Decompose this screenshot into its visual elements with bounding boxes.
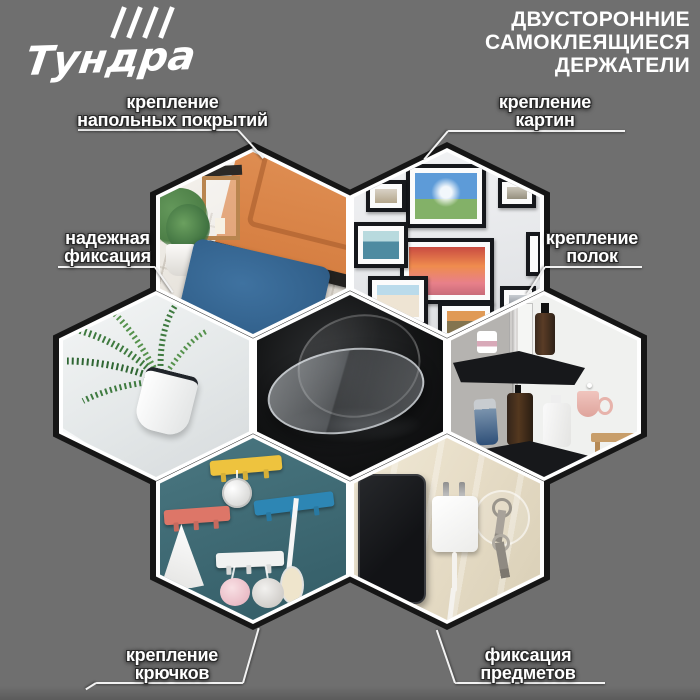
callout-text: напольных покрытий	[55, 112, 290, 130]
callout-text: крепление	[450, 94, 640, 112]
callout-hooks: крепление крючков	[82, 647, 262, 682]
cream-jar	[477, 331, 497, 353]
callout-line-pictures	[448, 130, 625, 132]
product-infographic: Тундра ДВУСТОРОННИЕ САМОКЛЕЯЩИЕСЯ ДЕРЖАТ…	[0, 0, 700, 700]
title-line: САМОКЛЕЯЩИЕСЯ	[485, 31, 690, 54]
callout-text: фиксация	[438, 647, 618, 665]
picture-frame	[406, 164, 486, 228]
callout-fixation: надежная фиксация	[25, 230, 190, 265]
title-line: ДЕРЖАТЕЛИ	[485, 54, 690, 77]
white-pump-bottle	[543, 403, 571, 447]
pink-cup	[577, 391, 599, 417]
callout-text: крепление	[82, 647, 262, 665]
glass-cup	[509, 303, 533, 355]
cup-handle	[597, 397, 613, 415]
gray-mesh-sponge	[252, 578, 284, 608]
page-title: ДВУСТОРОННИЕ САМОКЛЕЯЩИЕСЯ ДЕРЖАТЕЛИ	[485, 8, 690, 77]
coral-hook-rack	[164, 506, 231, 526]
callout-text: полок	[512, 248, 672, 266]
callout-text: картин	[450, 112, 640, 130]
callout-text: крепление	[512, 230, 672, 248]
callout-line-shelves	[545, 266, 642, 268]
yellow-hook-rack	[209, 455, 282, 476]
mesh-sponge-ball	[222, 478, 252, 508]
callout-pictures: крепление картин	[450, 94, 640, 129]
tundra-logo: Тундра	[18, 6, 258, 102]
wall-hook	[587, 383, 592, 388]
callout-line-fixation	[58, 266, 155, 268]
white-towel	[162, 524, 204, 588]
picture-frame	[354, 222, 408, 268]
logo-text: Тундра	[23, 35, 199, 83]
white-charger	[432, 496, 478, 552]
amber-bottle	[535, 313, 555, 355]
callout-shelves: крепление полок	[512, 230, 672, 265]
charger-cable	[452, 552, 457, 592]
white-hook-rack	[216, 551, 284, 568]
blue-spray-bottle	[473, 398, 498, 445]
title-line: ДВУСТОРОННИЕ	[485, 8, 690, 31]
callout-text: фиксация	[25, 248, 190, 266]
cable-connector	[384, 602, 392, 609]
callout-text: крепление	[55, 94, 290, 112]
callout-text: надежная	[25, 230, 190, 248]
candle	[215, 218, 225, 234]
slash-icon	[110, 6, 126, 39]
amber-pump-bottle	[507, 393, 533, 445]
slash-icon	[126, 6, 142, 39]
callout-objects: фиксация предметов	[438, 647, 618, 682]
callout-text: предметов	[438, 665, 618, 683]
pink-pom-sponge	[220, 578, 250, 606]
corner-shelf-upper	[453, 351, 585, 385]
callout-line-hooks	[85, 682, 96, 690]
callout-floor-coverings: крепление напольных покрытий	[55, 94, 290, 129]
callout-text: крючков	[82, 665, 262, 683]
phone-cable	[385, 608, 391, 620]
